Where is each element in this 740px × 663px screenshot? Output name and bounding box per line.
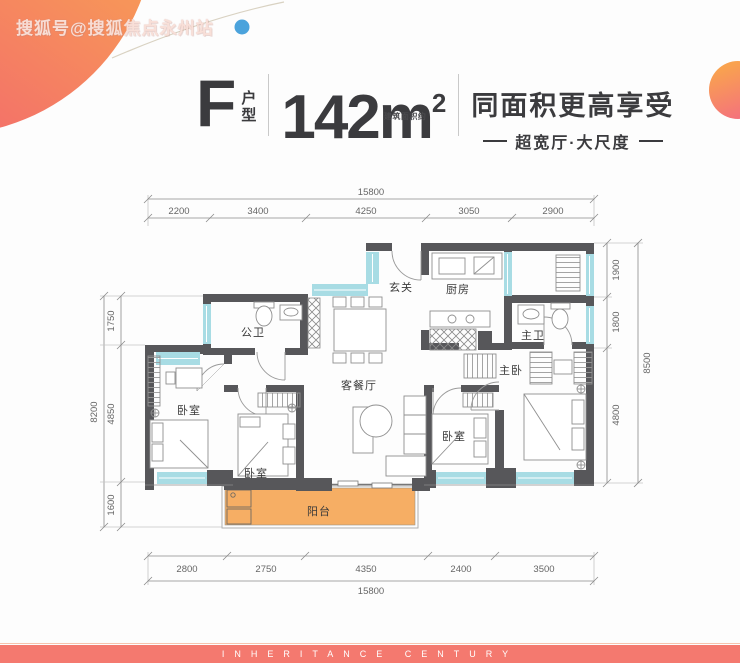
title-divider-1: [268, 74, 269, 136]
dim-left-total: 8200: [89, 401, 100, 422]
toilet-icon: [254, 302, 274, 326]
subline-dash-left: [483, 140, 507, 142]
unit-type-label-bottom: 型: [241, 107, 256, 124]
dim-top-seg: 2900: [542, 206, 563, 217]
dim-top-seg: 3400: [247, 206, 268, 217]
title-subrow: 超宽厅·大尺度: [471, 129, 674, 153]
sink-icon: [518, 305, 544, 324]
floorplan-poster: 搜狐号@搜狐焦点永州站 F 户 型 142m2 建筑面积约 同面积更高享受 超宽…: [0, 0, 740, 663]
room-label-bedroom: 卧室: [177, 403, 201, 417]
footer-accent-line: [0, 643, 740, 644]
room-label-bath-master: 主卫: [521, 329, 545, 342]
sliding-door-panel: [372, 483, 392, 488]
unit-type-label-top: 户: [241, 90, 256, 107]
room-label-bedroom: 卧室: [244, 466, 268, 480]
vent-rect: [556, 255, 580, 291]
dim-left-seg: 1750: [106, 310, 117, 331]
unit-area-note: 建筑面积约: [384, 84, 427, 150]
dining-table-icon: [333, 297, 386, 363]
bed-icon: [238, 393, 300, 476]
room-label-balcony: 阳台: [307, 504, 331, 518]
room-label-bedroom-master: 主卧: [499, 364, 523, 377]
dim-top-seg: 2200: [168, 206, 189, 217]
dim-bottom-seg: 4350: [355, 564, 376, 575]
dim-bottom-seg: 2800: [176, 564, 197, 575]
room-label-bath-public: 公卫: [241, 327, 265, 339]
dim-right-seg: 1800: [611, 311, 622, 332]
unit-area: 142m2 建筑面积约: [281, 70, 446, 151]
footer-text: INHERITANCE CENTURY: [222, 649, 518, 659]
room-label-entry: 玄关: [389, 280, 413, 294]
title-right: 同面积更高享受 超宽厅·大尺度: [471, 84, 674, 153]
room-label-living: 客餐厅: [341, 378, 377, 392]
sink-icon: [280, 305, 302, 320]
toilet-icon: [551, 303, 570, 329]
dim-bottom-seg: 2400: [450, 564, 471, 575]
title-headline: 同面积更高享受: [471, 84, 674, 123]
dim-right-seg: 1900: [611, 259, 622, 280]
room-label-kitchen: 厨房: [446, 283, 470, 296]
dim-top-total: 15800: [358, 187, 384, 198]
dim-top-seg: 4250: [355, 206, 376, 217]
unit-type-label: 户 型: [241, 90, 256, 124]
dim-bottom-total: 15800: [358, 586, 384, 597]
unit-area-sup: 2: [432, 88, 446, 118]
title-subline: 超宽厅·大尺度: [515, 129, 630, 153]
room-label-bedroom: 卧室: [442, 429, 466, 443]
dim-top-seg: 3050: [458, 206, 479, 217]
sofa-icon: [386, 396, 426, 476]
title-divider-2: [458, 74, 459, 136]
dim-right-seg: 4800: [611, 404, 622, 425]
title-block: F 户 型 142m2 建筑面积约 同面积更高享受 超宽厅·大尺度: [196, 70, 674, 153]
dim-left-seg: 1600: [106, 494, 117, 515]
unit-type-letter: F: [196, 70, 236, 136]
round-table-icon: [353, 405, 392, 453]
bed-icon: [432, 393, 493, 464]
dim-bottom-seg: 2750: [255, 564, 276, 575]
dim-bottom-seg: 3500: [533, 564, 554, 575]
footer-bar: INHERITANCE CENTURY: [0, 645, 740, 663]
watermark-text: 搜狐号@搜狐焦点永州站: [16, 14, 214, 39]
right-ticks: [603, 239, 642, 487]
dim-right-total: 8500: [642, 352, 653, 373]
furniture: [148, 253, 592, 476]
sliding-door-panel: [338, 481, 358, 486]
subline-dash-right: [639, 140, 663, 142]
dim-left-seg: 4850: [106, 403, 117, 424]
